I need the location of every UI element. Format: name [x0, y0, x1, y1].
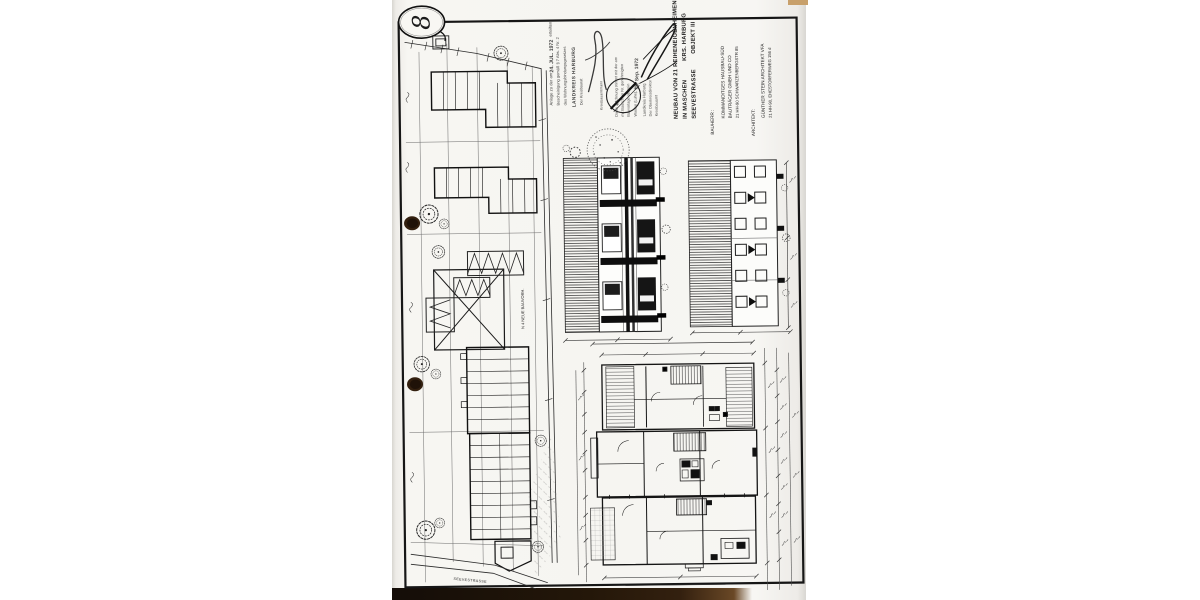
stair	[671, 366, 701, 384]
review-stamp: Diese Zeichnung stimmt mit der am mit Ba…	[614, 57, 659, 117]
terrace	[591, 508, 616, 560]
floor-plan-upper	[591, 430, 758, 499]
review-stamp-office: Der Oberkreisdirektor	[648, 79, 652, 116]
project-title-line3b: OBJEKT III	[691, 21, 697, 54]
rowhouse-block-d	[470, 433, 537, 540]
floor-plan-ground	[590, 496, 756, 572]
review-stamp-line1: Diese Zeichnung stimmt mit der am	[614, 57, 619, 117]
architect-label: ARCHITEKT:	[751, 109, 756, 136]
project-title-line2b: KRS. HARBURG	[681, 13, 688, 61]
floor-plan-attic	[602, 363, 755, 430]
approval-stamp: Anlage zu der am 24. JUL. 1972 erteilten…	[548, 20, 611, 110]
client-label: BAUHERR :	[710, 110, 715, 135]
project-title-line2a: IN MASCHEN	[682, 80, 688, 119]
signature-review	[639, 24, 678, 83]
crossed-building	[434, 269, 505, 350]
approval-stamp-signer-title: Kreisbauamtmann	[599, 81, 603, 110]
site-trees	[410, 46, 547, 554]
architect-line2: 21 HH-90, EHESTORFERWEG 156 d	[767, 47, 773, 118]
signature-approval	[588, 31, 607, 92]
road-name-label: SEEVESTRASSE	[453, 577, 487, 584]
scanned-drawing-page: N 4 NEUE BAUVORH.	[0, 0, 1200, 600]
client-line2: BAUTRÄGER GMBH UND CO	[726, 55, 733, 119]
punch-holes	[404, 216, 423, 391]
approval-stamp-authority: LANDKREIS HARBURG	[571, 47, 578, 108]
roof-hatch	[688, 160, 732, 327]
building-block-a	[431, 71, 536, 128]
site-note-label: N 4 NEUE BAUVORH.	[520, 288, 525, 329]
review-stamp-authority: Landkreis Harburg	[641, 83, 646, 116]
client-line1: KOMMANDITGES HAUSBAU-SÜD	[719, 45, 726, 118]
architect-line1: GÜNTHER STEIN ARCHITEKT VFA	[759, 43, 766, 118]
title-block: NEUBAU VON 21 REIHENEIGENHEIMEN IN MASCH…	[672, 0, 773, 137]
elevation-dimensions	[563, 336, 754, 347]
rowhouse-block-c	[461, 347, 530, 434]
page-number: 8	[407, 14, 435, 30]
site-plan: N 4 NEUE BAUVORH.	[404, 35, 561, 591]
approval-stamp-line1: Anlage zu der am	[548, 72, 553, 105]
approval-stamp-line3: des Wohnungsbindungsgesetzes	[562, 47, 568, 106]
review-stamp-department: Kreisbauamt	[654, 94, 658, 116]
approval-stamp-line2: Bescheinigung gemäß § 7 Abs. 4 Nr. 2	[555, 36, 561, 105]
approval-stamp-signer: Der Kreisbaurat	[579, 78, 583, 106]
building-block-b	[434, 167, 537, 214]
stair	[674, 433, 706, 451]
approval-stamp-line1-end: erteilten	[548, 21, 553, 37]
north-label: N	[615, 101, 621, 105]
roof-hatch	[563, 158, 599, 332]
project-title-line3a: SEEVESTRASSE	[691, 69, 698, 119]
architectural-drawing: N 4 NEUE BAUVORH.	[392, 0, 806, 600]
review-stamp-line2: mit Bauschein Nr. genehmigten	[620, 64, 625, 117]
elevation-street-facade	[688, 160, 797, 335]
client-line3: 21 HH-90 SCHWARZENBERGSTR 85	[734, 46, 740, 119]
road	[411, 553, 547, 591]
